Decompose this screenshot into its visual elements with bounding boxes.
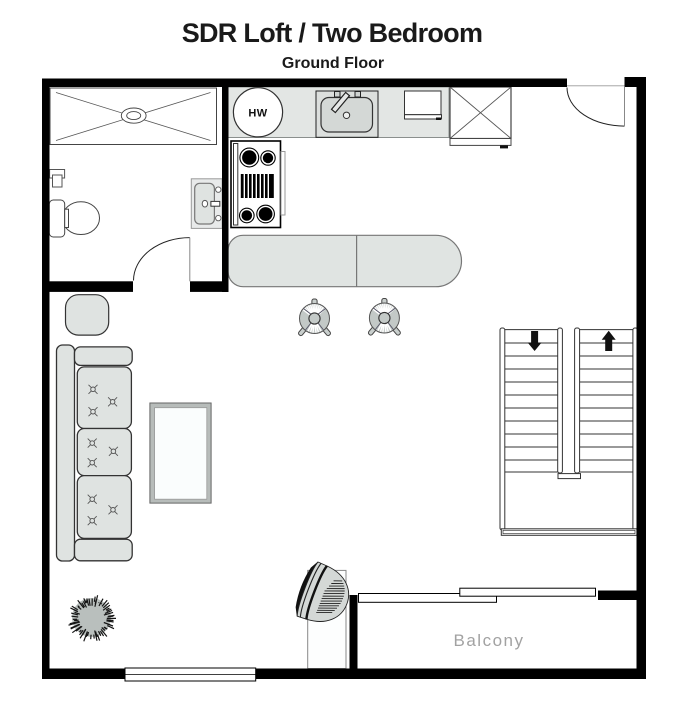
svg-text:Ground Floor: Ground Floor [282,55,384,72]
svg-text:SDR Loft / Two Bedroom: SDR Loft / Two Bedroom [182,18,483,48]
svg-text:HW: HW [248,108,267,120]
svg-text:Balcony: Balcony [454,631,525,650]
